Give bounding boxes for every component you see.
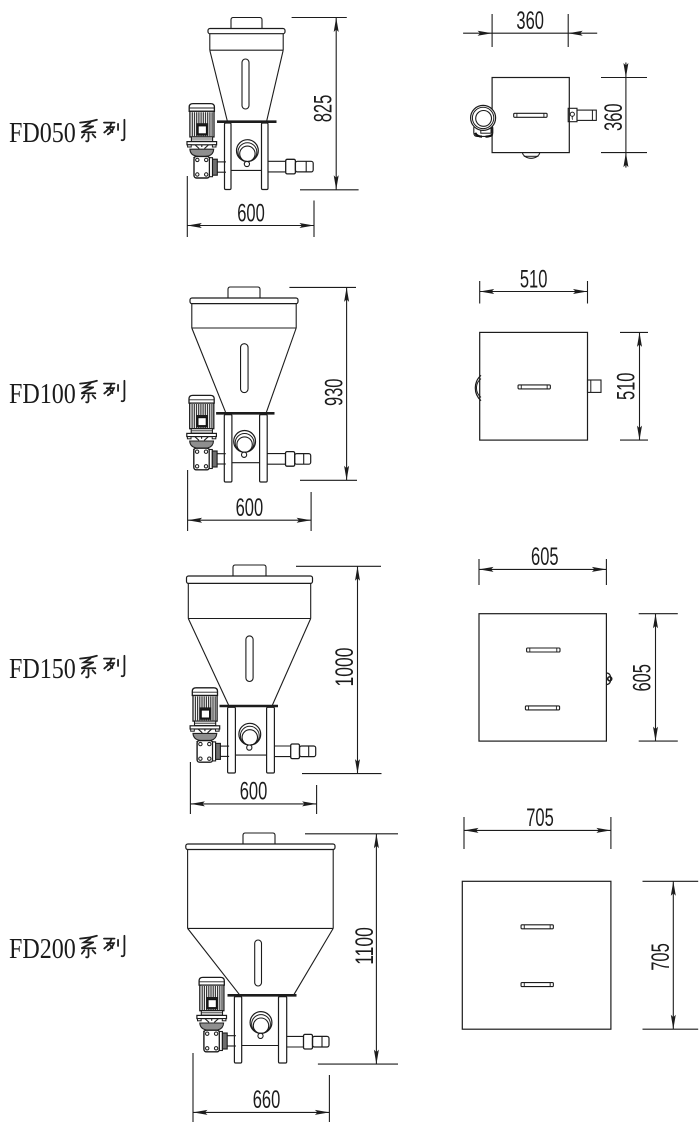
svg-text:360: 360 — [516, 8, 544, 35]
svg-text:600: 600 — [237, 200, 265, 227]
svg-text:360: 360 — [601, 103, 628, 131]
svg-text:510: 510 — [520, 266, 548, 293]
svg-text:705: 705 — [526, 805, 554, 832]
svg-text:705: 705 — [648, 943, 675, 971]
svg-text:FD100: FD100 — [9, 377, 76, 410]
svg-text:FD050: FD050 — [9, 116, 76, 149]
svg-text:605: 605 — [531, 544, 559, 571]
svg-text:1100: 1100 — [350, 927, 379, 965]
svg-text:825: 825 — [310, 95, 337, 123]
svg-text:FD200: FD200 — [9, 932, 76, 965]
svg-text:605: 605 — [629, 664, 656, 692]
svg-text:FD150: FD150 — [9, 652, 76, 685]
svg-text:600: 600 — [240, 778, 268, 805]
svg-text:660: 660 — [253, 1087, 281, 1114]
svg-text:1000: 1000 — [330, 648, 359, 687]
svg-text:930: 930 — [321, 379, 348, 407]
svg-text:510: 510 — [613, 373, 640, 401]
svg-text:600: 600 — [236, 495, 264, 522]
